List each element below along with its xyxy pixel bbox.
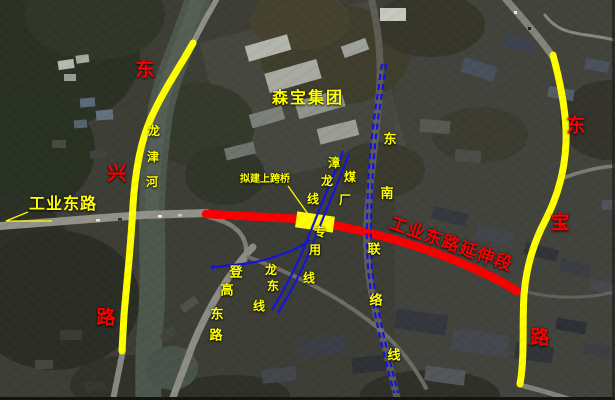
rail-coal-spur-char: 用 (309, 244, 321, 256)
rail-southeast-link-char: 南 (380, 188, 393, 201)
road-dongxing-char: 兴 (107, 165, 126, 184)
rail-southeast-link-char: 联 (367, 244, 380, 257)
satellite-map: 森宝集团 工业东路 拟建上跨桥 工业东路延伸段 龙 津 河 东 兴 路 东 宝 … (0, 0, 615, 400)
rail-zhanglong-char: 龙 (321, 175, 333, 187)
rail-zhanglong-char: 漳 (328, 157, 340, 169)
road-dongxing-char: 路 (96, 309, 115, 328)
river-name-char: 津 (147, 151, 159, 163)
road-denggao-char: 登 (229, 267, 242, 280)
road-dongbao-char: 东 (566, 117, 585, 136)
rail-southeast-link-char: 线 (387, 350, 400, 363)
rail-zhanglong-char: 线 (307, 193, 319, 205)
road-denggao-char: 高 (220, 285, 233, 298)
company-label: 森宝集团 (272, 90, 344, 106)
proposed-overpass-label: 拟建上跨桥 (240, 175, 290, 185)
rail-coal-spur-char: 煤 (344, 171, 356, 183)
rail-coal-spur-char: 厂 (339, 194, 351, 206)
rail-southeast-link-char: 络 (369, 295, 382, 308)
river-name-char: 龙 (148, 125, 160, 137)
rail-southeast-link-char: 东 (383, 134, 396, 147)
rail-coal-spur-char: 线 (303, 272, 315, 284)
railway-branch-endpoint (211, 265, 216, 270)
road-dongbao-char: 宝 (550, 214, 569, 233)
road-denggao-char: 东 (210, 309, 223, 322)
road-dongbao-char: 路 (530, 329, 549, 348)
rail-longdong-char: 线 (253, 300, 265, 312)
rail-coal-spur-char: 专 (314, 226, 326, 238)
rail-longdong-char: 龙 (265, 264, 277, 276)
road-denggao-char: 路 (209, 330, 222, 343)
road-dongxing-char: 东 (135, 61, 154, 80)
rail-longdong-char: 东 (267, 280, 279, 292)
road-label-gongye-donglu: 工业东路 (29, 196, 97, 212)
river-name-char: 河 (146, 176, 158, 188)
